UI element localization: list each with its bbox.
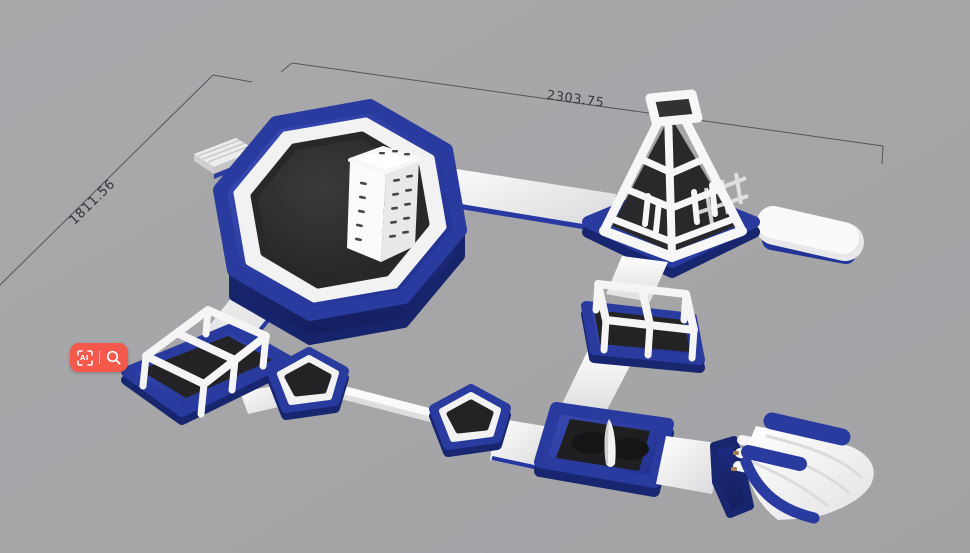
waterpark-render: 2303.75 1811.56 [0,0,970,553]
magnifier-icon [105,349,122,366]
float-capsule [772,222,846,254]
slide-handle [733,451,739,455]
pentagon-stepper-1 [272,352,344,415]
climbing-tower [347,148,419,262]
ai-frame-icon [76,349,94,367]
lattice-cube-right [586,284,700,368]
overlay-toolbar: AI [70,343,128,372]
image-search-button[interactable] [105,349,123,367]
3d-viewport: 2303.75 1811.56 [0,0,970,553]
splash-trampoline-with-wedge [540,408,668,491]
octagon-trampoline [220,106,460,340]
toolbar-divider [99,351,100,364]
slide-handle [731,467,737,471]
pentagon-stepper-2 [434,389,506,452]
pyramid-top-ring [650,94,698,122]
ai-translate-button[interactable]: AI [76,349,94,367]
